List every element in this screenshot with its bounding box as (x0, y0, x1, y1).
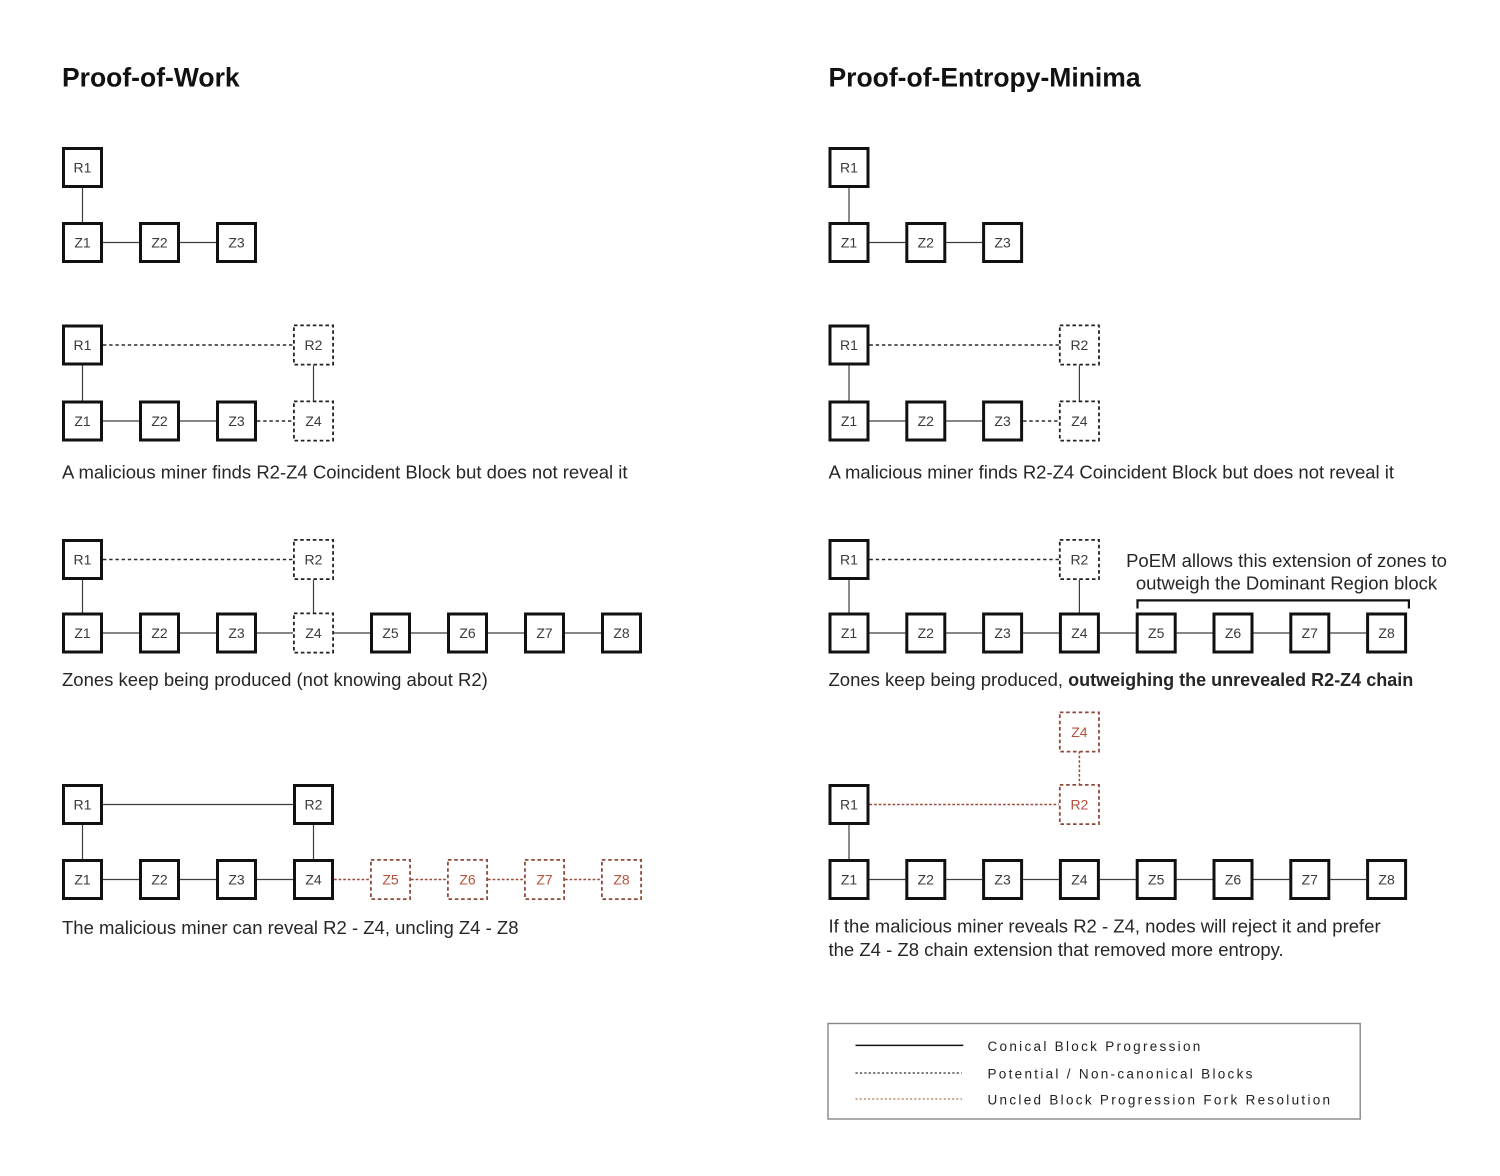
svg-text:Z1: Z1 (841, 625, 858, 641)
svg-text:R2: R2 (305, 796, 323, 812)
svg-text:R2: R2 (305, 337, 323, 353)
svg-text:Z2: Z2 (151, 871, 168, 887)
svg-text:Z8: Z8 (1378, 625, 1395, 641)
svg-text:R1: R1 (74, 551, 92, 567)
svg-text:Conical Block Progression: Conical Block Progression (988, 1039, 1203, 1054)
svg-text:Z3: Z3 (228, 413, 245, 429)
svg-text:Z4: Z4 (305, 871, 322, 887)
svg-text:Z1: Z1 (841, 413, 858, 429)
svg-text:R2: R2 (1070, 551, 1088, 567)
svg-text:R2: R2 (305, 551, 323, 567)
svg-text:Z1: Z1 (74, 625, 91, 641)
svg-text:Z3: Z3 (228, 234, 245, 250)
svg-text:Z5: Z5 (382, 871, 399, 887)
svg-text:R1: R1 (74, 796, 92, 812)
svg-text:Z8: Z8 (613, 625, 630, 641)
svg-text:Z7: Z7 (1302, 871, 1319, 887)
svg-text:Z8: Z8 (613, 871, 630, 887)
svg-text:Z7: Z7 (1302, 625, 1319, 641)
svg-text:Z4: Z4 (305, 625, 322, 641)
svg-text:Z4: Z4 (1071, 625, 1088, 641)
svg-text:Z4: Z4 (1071, 724, 1088, 740)
svg-text:Z4: Z4 (1071, 413, 1088, 429)
svg-text:the Z4 - Z8 chain extension th: the Z4 - Z8 chain extension that removed… (829, 939, 1284, 960)
svg-text:Zones keep being produced, out: Zones keep being produced, outweighing t… (829, 669, 1414, 690)
svg-text:R2: R2 (1070, 337, 1088, 353)
svg-text:Z3: Z3 (228, 871, 245, 887)
svg-text:R2: R2 (1070, 796, 1088, 812)
svg-text:The malicious miner can reveal: The malicious miner can reveal R2 - Z4, … (62, 917, 519, 938)
svg-text:Potential / Non-canonical Bloc: Potential / Non-canonical Blocks (988, 1066, 1255, 1081)
svg-text:Z6: Z6 (459, 871, 476, 887)
svg-text:Z1: Z1 (841, 234, 858, 250)
svg-text:R1: R1 (74, 159, 92, 175)
svg-text:R1: R1 (74, 337, 92, 353)
svg-text:Z8: Z8 (1378, 871, 1395, 887)
svg-text:Z2: Z2 (918, 625, 935, 641)
svg-text:Z5: Z5 (1148, 871, 1165, 887)
svg-text:Z1: Z1 (74, 871, 91, 887)
svg-text:Z2: Z2 (151, 625, 168, 641)
svg-text:Z2: Z2 (918, 413, 935, 429)
svg-text:Z2: Z2 (151, 234, 168, 250)
svg-text:Z7: Z7 (536, 871, 553, 887)
svg-text:Z6: Z6 (1225, 625, 1242, 641)
svg-text:Z4: Z4 (305, 413, 322, 429)
svg-text:A malicious miner finds R2-Z4: A malicious miner finds R2-Z4 Coincident… (829, 462, 1395, 483)
svg-text:Z5: Z5 (1148, 625, 1165, 641)
svg-text:Z5: Z5 (382, 625, 399, 641)
svg-text:PoEM allows this extension of: PoEM allows this extension of zones to (1126, 550, 1447, 571)
svg-text:Z7: Z7 (536, 625, 553, 641)
svg-text:R1: R1 (840, 337, 858, 353)
svg-text:R1: R1 (840, 551, 858, 567)
svg-text:Z3: Z3 (994, 234, 1011, 250)
svg-text:Uncled Block Progression Fork: Uncled Block Progression Fork Resolution (988, 1092, 1333, 1107)
svg-text:Z1: Z1 (74, 413, 91, 429)
svg-text:Z2: Z2 (918, 871, 935, 887)
svg-text:R1: R1 (840, 796, 858, 812)
svg-text:R1: R1 (840, 159, 858, 175)
svg-text:outweigh the Dominant Region b: outweigh the Dominant Region block (1136, 572, 1438, 593)
svg-text:Z1: Z1 (74, 234, 91, 250)
svg-text:A malicious miner finds R2-Z4: A malicious miner finds R2-Z4 Coincident… (62, 462, 628, 483)
svg-text:Z3: Z3 (994, 871, 1011, 887)
svg-text:Z2: Z2 (151, 413, 168, 429)
svg-text:Z4: Z4 (1071, 871, 1088, 887)
svg-text:Z6: Z6 (459, 625, 476, 641)
svg-text:Zones keep being produced (not: Zones keep being produced (not knowing a… (62, 669, 488, 690)
svg-text:Z3: Z3 (994, 625, 1011, 641)
svg-text:Z6: Z6 (1225, 871, 1242, 887)
svg-text:Z3: Z3 (228, 625, 245, 641)
svg-text:Z2: Z2 (918, 234, 935, 250)
svg-text:Proof-of-Entropy-Minima: Proof-of-Entropy-Minima (829, 63, 1141, 93)
svg-text:Z1: Z1 (841, 871, 858, 887)
svg-text:If the malicious miner reveals: If the malicious miner reveals R2 - Z4, … (829, 916, 1381, 937)
svg-text:Z3: Z3 (994, 413, 1011, 429)
svg-text:Proof-of-Work: Proof-of-Work (62, 63, 240, 93)
